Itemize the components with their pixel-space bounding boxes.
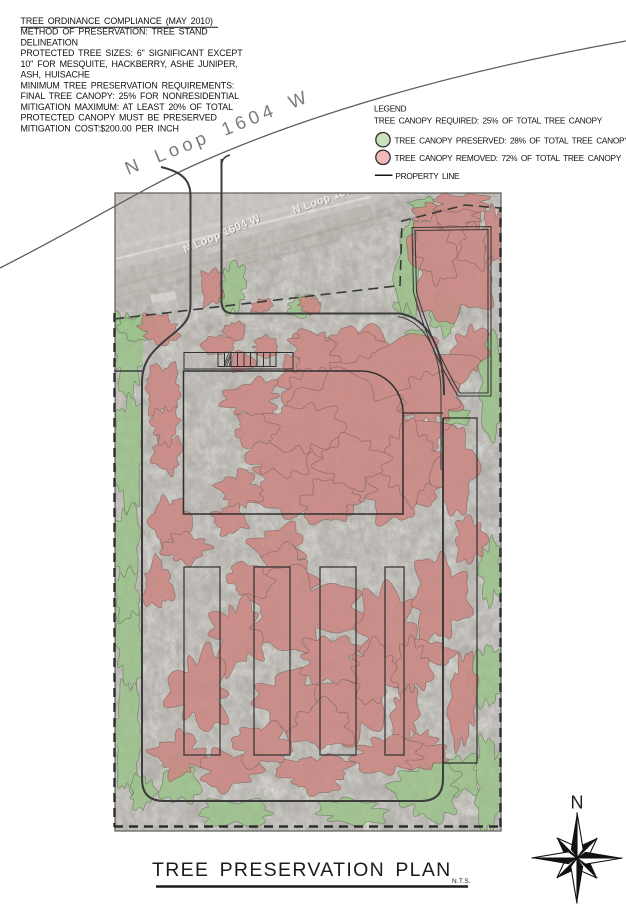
- svg-text:ASH, HUISACHE: ASH, HUISACHE: [21, 70, 91, 80]
- svg-text:MINIMUM TREE PRESERVATION REQU: MINIMUM TREE PRESERVATION REQUIREMENTS:: [21, 80, 235, 90]
- svg-text:DELINEATION: DELINEATION: [21, 37, 78, 47]
- svg-text:TREE CANOPY REQUIRED: 25% OF T: TREE CANOPY REQUIRED: 25% OF TOTAL TREE …: [374, 116, 603, 126]
- svg-text:PROTECTED TREE SIZES: 6" SIGNI: PROTECTED TREE SIZES: 6" SIGNIFICANT EXC…: [21, 48, 244, 58]
- svg-text:TREE CANOPY PRESERVED: 28% OF: TREE CANOPY PRESERVED: 28% OF TOTAL TREE…: [395, 135, 626, 145]
- svg-text:N.T.S.: N.T.S.: [452, 878, 471, 885]
- svg-text:MITIGATION COST:$200.00 PER IN: MITIGATION COST:$200.00 PER INCH: [21, 123, 179, 133]
- svg-text:FINAL TREE CANOPY: 25% FOR NON: FINAL TREE CANOPY: 25% FOR NONRESIDENTIA…: [21, 91, 240, 101]
- svg-text:PROPERTY LINE: PROPERTY LINE: [395, 171, 460, 181]
- svg-text:TREE PRESERVATION PLAN: TREE PRESERVATION PLAN: [152, 859, 452, 881]
- svg-text:LEGEND: LEGEND: [374, 104, 407, 114]
- svg-text:MITIGATION MAXIMUM: AT LEAST 2: MITIGATION MAXIMUM: AT LEAST 20% OF TOTA…: [21, 102, 234, 112]
- svg-text:PROTECTED CANOPY MUST BE PRESE: PROTECTED CANOPY MUST BE PRESERVED: [21, 113, 217, 123]
- svg-text:10" FOR MESQUITE, HACKBERRY, A: 10" FOR MESQUITE, HACKBERRY, ASHE JUNIPE…: [21, 59, 238, 69]
- svg-text:METHOD OF PRESERVATION: TREE S: METHOD OF PRESERVATION: TREE STAND: [21, 27, 208, 37]
- svg-text:TREE ORDINANCE COMPLIANCE (MAY: TREE ORDINANCE COMPLIANCE (MAY 2010): [21, 16, 213, 26]
- svg-text:TREE CANOPY REMOVED: 72% OF TO: TREE CANOPY REMOVED: 72% OF TOTAL TREE C…: [395, 153, 622, 163]
- svg-text:N: N: [571, 793, 584, 813]
